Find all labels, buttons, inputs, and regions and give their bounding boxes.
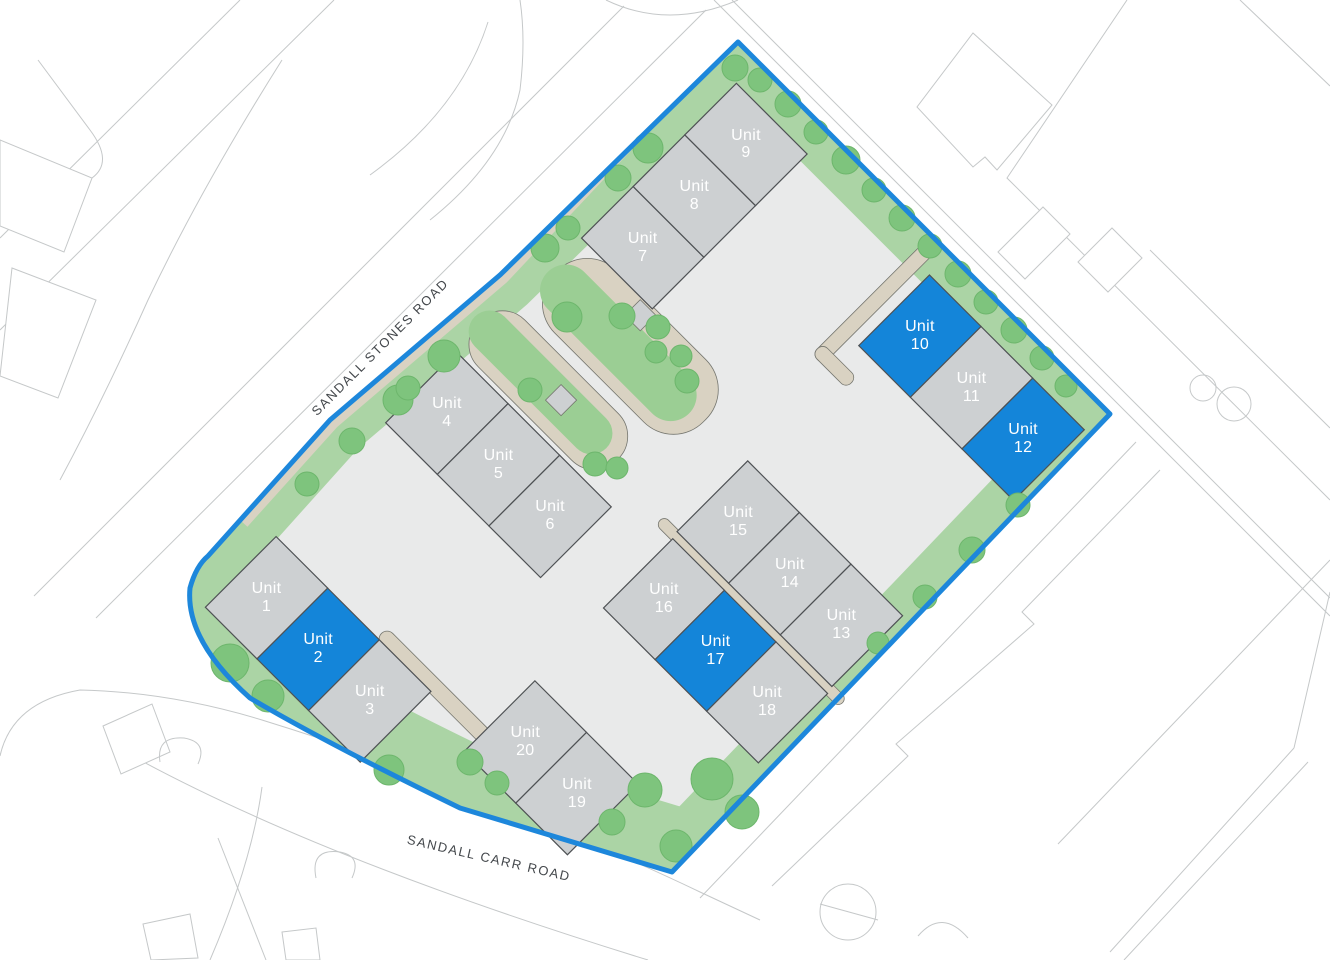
tree-icon xyxy=(295,472,319,496)
tree-icon xyxy=(691,758,733,800)
unit-number: 4 xyxy=(432,413,462,431)
unit-word: Unit xyxy=(679,178,709,196)
site-plan: SANDALL STONES ROAD SANDALL CARR ROAD Un… xyxy=(0,0,1330,960)
tree-icon xyxy=(918,234,942,258)
unit-number: 5 xyxy=(484,465,514,483)
unit-number: 14 xyxy=(775,574,805,592)
unit-word: Unit xyxy=(827,607,857,625)
unit-label-11[interactable]: Unit11 xyxy=(957,370,987,406)
unit-number: 13 xyxy=(827,625,857,643)
unit-number: 9 xyxy=(731,145,761,163)
unit-label-4[interactable]: Unit4 xyxy=(432,395,462,431)
unit-number: 16 xyxy=(649,599,679,617)
unit-label-20[interactable]: Unit20 xyxy=(510,724,540,760)
tree-icon xyxy=(974,290,998,314)
tree-icon xyxy=(670,345,692,367)
unit-word: Unit xyxy=(432,395,462,413)
tree-icon xyxy=(428,340,460,372)
unit-word: Unit xyxy=(957,370,987,388)
unit-label-13[interactable]: Unit13 xyxy=(827,607,857,643)
tree-icon xyxy=(862,178,886,202)
unit-label-17[interactable]: Unit17 xyxy=(701,633,731,669)
unit-label-10[interactable]: Unit10 xyxy=(905,318,935,354)
tree-icon xyxy=(646,315,670,339)
tree-icon xyxy=(552,302,582,332)
unit-label-9[interactable]: Unit9 xyxy=(731,127,761,163)
unit-word: Unit xyxy=(731,127,761,145)
unit-label-15[interactable]: Unit15 xyxy=(723,504,753,540)
unit-word: Unit xyxy=(484,447,514,465)
unit-number: 11 xyxy=(957,388,987,406)
unit-label-1[interactable]: Unit1 xyxy=(252,580,282,616)
unit-number: 15 xyxy=(723,522,753,540)
unit-number: 10 xyxy=(905,336,935,354)
unit-label-8[interactable]: Unit8 xyxy=(679,178,709,214)
unit-label-18[interactable]: Unit18 xyxy=(752,684,782,720)
unit-word: Unit xyxy=(303,631,333,649)
unit-word: Unit xyxy=(905,318,935,336)
unit-label-2[interactable]: Unit2 xyxy=(303,631,333,667)
tree-icon xyxy=(645,341,667,363)
site-plan-canvas xyxy=(0,0,1330,960)
unit-word: Unit xyxy=(1008,421,1038,439)
tree-icon xyxy=(457,749,483,775)
tree-icon xyxy=(583,452,607,476)
unit-label-12[interactable]: Unit12 xyxy=(1008,421,1038,457)
unit-word: Unit xyxy=(562,776,592,794)
unit-number: 8 xyxy=(679,196,709,214)
unit-number: 6 xyxy=(535,516,565,534)
tree-icon xyxy=(628,773,662,807)
tree-icon xyxy=(675,369,699,393)
tree-icon xyxy=(1030,346,1054,370)
tree-icon xyxy=(396,376,420,400)
unit-label-3[interactable]: Unit3 xyxy=(355,683,385,719)
tree-icon xyxy=(804,120,828,144)
unit-label-7[interactable]: Unit7 xyxy=(628,230,658,266)
unit-number: 18 xyxy=(752,702,782,720)
unit-number: 17 xyxy=(701,651,731,669)
unit-word: Unit xyxy=(355,683,385,701)
unit-number: 2 xyxy=(303,649,333,667)
unit-word: Unit xyxy=(775,556,805,574)
unit-label-6[interactable]: Unit6 xyxy=(535,498,565,534)
unit-number: 7 xyxy=(628,248,658,266)
tree-icon xyxy=(485,771,509,795)
tree-icon xyxy=(722,55,748,81)
unit-number: 20 xyxy=(510,742,540,760)
tree-icon xyxy=(599,809,625,835)
unit-number: 1 xyxy=(252,598,282,616)
tree-icon xyxy=(339,428,365,454)
unit-word: Unit xyxy=(649,581,679,599)
unit-word: Unit xyxy=(252,580,282,598)
unit-label-16[interactable]: Unit16 xyxy=(649,581,679,617)
unit-number: 19 xyxy=(562,794,592,812)
unit-word: Unit xyxy=(628,230,658,248)
unit-word: Unit xyxy=(510,724,540,742)
tree-icon xyxy=(606,457,628,479)
unit-label-19[interactable]: Unit19 xyxy=(562,776,592,812)
unit-label-5[interactable]: Unit5 xyxy=(484,447,514,483)
unit-word: Unit xyxy=(701,633,731,651)
unit-word: Unit xyxy=(723,504,753,522)
tree-icon xyxy=(518,378,542,402)
tree-icon xyxy=(609,303,635,329)
unit-word: Unit xyxy=(535,498,565,516)
unit-label-14[interactable]: Unit14 xyxy=(775,556,805,592)
unit-number: 12 xyxy=(1008,439,1038,457)
unit-number: 3 xyxy=(355,701,385,719)
unit-word: Unit xyxy=(752,684,782,702)
